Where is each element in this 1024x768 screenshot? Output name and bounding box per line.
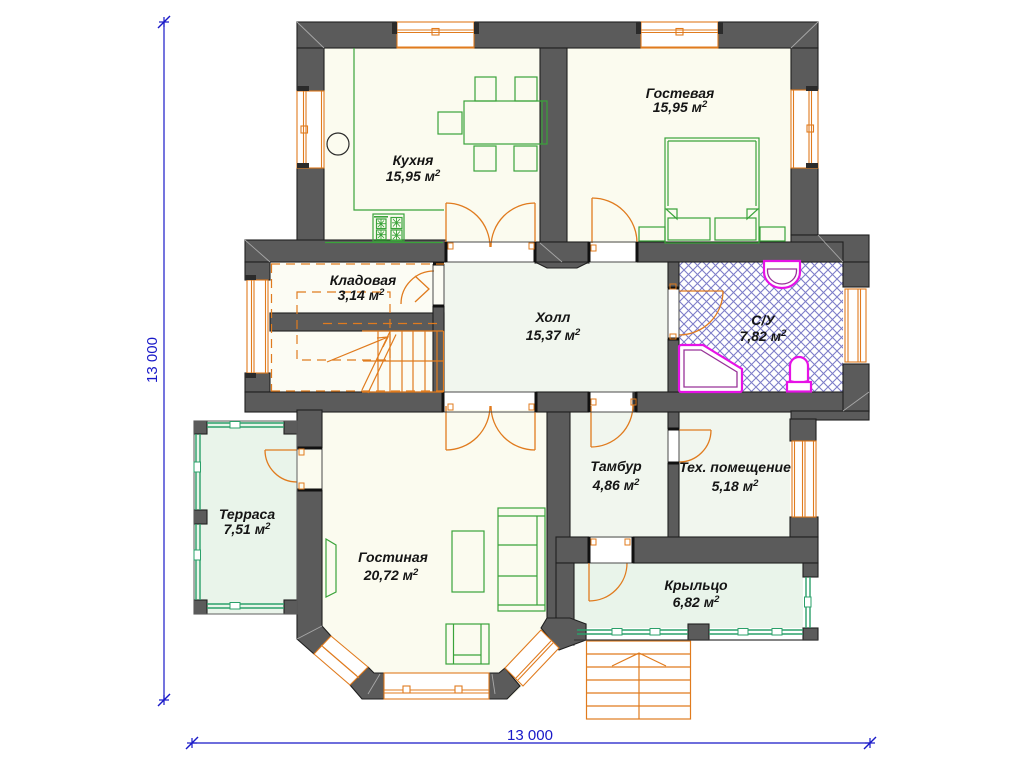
svg-text:15,95 м2: 15,95 м2 (386, 168, 441, 184)
svg-text:13 000: 13 000 (144, 337, 161, 383)
svg-text:Тамбур: Тамбур (590, 458, 642, 474)
svg-text:7,51 м2: 7,51 м2 (224, 521, 272, 537)
svg-text:Холл: Холл (535, 309, 571, 325)
svg-text:Крыльцо: Крыльцо (664, 577, 728, 593)
svg-text:Тех. помещение: Тех. помещение (679, 459, 791, 475)
svg-text:Гостиная: Гостиная (358, 549, 428, 565)
svg-text:3,14 м2: 3,14 м2 (338, 287, 386, 303)
svg-text:7,82 м2: 7,82 м2 (740, 328, 788, 344)
svg-text:Терраса: Терраса (219, 506, 275, 522)
svg-text:С/У: С/У (751, 312, 776, 328)
svg-text:5,18 м2: 5,18 м2 (712, 478, 760, 494)
svg-text:15,95 м2: 15,95 м2 (653, 99, 708, 115)
svg-text:6,82 м2: 6,82 м2 (673, 594, 721, 610)
svg-text:20,72 м2: 20,72 м2 (363, 567, 419, 583)
svg-text:13 000: 13 000 (507, 727, 553, 744)
svg-text:15,37 м2: 15,37 м2 (526, 327, 581, 343)
svg-text:Кухня: Кухня (393, 152, 434, 168)
svg-text:Кладовая: Кладовая (330, 272, 397, 288)
svg-text:4,86 м2: 4,86 м2 (592, 477, 641, 493)
